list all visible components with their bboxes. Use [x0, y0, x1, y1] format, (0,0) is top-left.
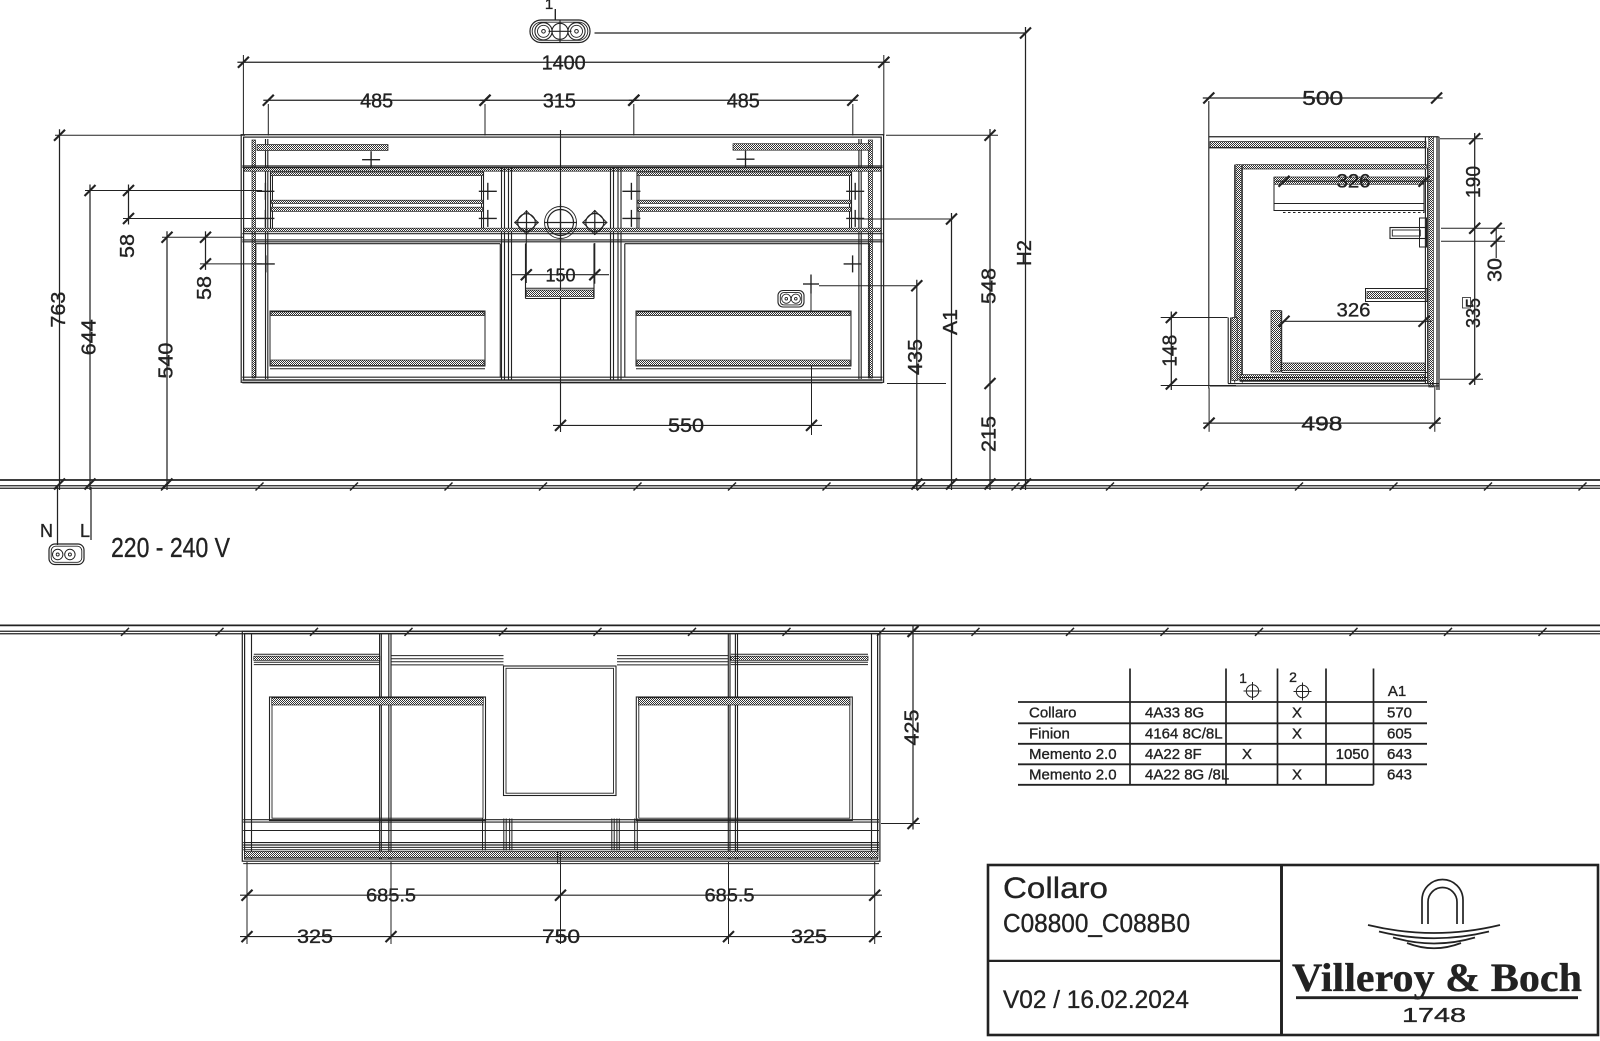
svg-text:Collaro: Collaro: [1029, 705, 1077, 722]
svg-text:335: 335: [1463, 298, 1485, 328]
svg-text:4164 8C/8L: 4164 8C/8L: [1145, 725, 1223, 742]
svg-text:685.5: 685.5: [705, 886, 755, 906]
svg-text:498: 498: [1301, 413, 1342, 435]
svg-text:150: 150: [546, 266, 576, 286]
svg-text:Memento 2.0: Memento 2.0: [1029, 746, 1117, 763]
svg-text:750: 750: [542, 927, 580, 948]
svg-text:V02 / 16.02.2024: V02 / 16.02.2024: [1003, 986, 1189, 1014]
svg-text:Collaro: Collaro: [1003, 872, 1108, 905]
svg-text:763: 763: [48, 292, 70, 328]
svg-text:325: 325: [791, 927, 827, 948]
svg-text:Memento 2.0: Memento 2.0: [1029, 767, 1117, 784]
svg-text:485: 485: [360, 90, 393, 112]
svg-text:X: X: [1292, 725, 1302, 742]
svg-text:1050: 1050: [1336, 746, 1369, 763]
svg-text:215: 215: [978, 416, 1000, 452]
svg-text:2: 2: [1289, 669, 1297, 685]
svg-text:540: 540: [155, 343, 177, 379]
svg-text:4A22 8G /8L: 4A22 8G /8L: [1145, 767, 1229, 784]
svg-text:570: 570: [1387, 705, 1412, 722]
svg-text:326: 326: [1337, 172, 1371, 193]
svg-text:1400: 1400: [542, 53, 586, 75]
svg-text:550: 550: [668, 416, 704, 437]
svg-text:190: 190: [1463, 166, 1485, 198]
svg-text:1: 1: [1239, 670, 1247, 686]
svg-text:605: 605: [1387, 725, 1412, 742]
svg-text:485: 485: [727, 90, 760, 112]
svg-text:548: 548: [978, 268, 1000, 304]
svg-text:315: 315: [543, 90, 576, 112]
svg-text:X: X: [1292, 705, 1302, 722]
svg-text:X: X: [1242, 746, 1252, 763]
svg-text:220 - 240 V: 220 - 240 V: [111, 532, 230, 563]
svg-text:1: 1: [545, 0, 553, 13]
svg-text:A1: A1: [1388, 683, 1406, 700]
svg-text:30: 30: [1484, 258, 1506, 282]
svg-text:Villeroy & Boch: Villeroy & Boch: [1292, 955, 1582, 1000]
svg-text:425: 425: [901, 710, 923, 746]
svg-text:435: 435: [905, 339, 927, 375]
svg-text:325: 325: [297, 927, 333, 948]
svg-text:685.5: 685.5: [366, 886, 416, 906]
svg-text:1748: 1748: [1402, 1005, 1466, 1027]
svg-text:H2: H2: [1014, 240, 1036, 266]
svg-text:4A22 8F: 4A22 8F: [1145, 746, 1202, 763]
svg-text:X: X: [1292, 767, 1302, 784]
svg-text:A1: A1: [940, 309, 962, 335]
svg-text:643: 643: [1387, 767, 1412, 784]
svg-text:644: 644: [78, 319, 100, 355]
svg-text:58: 58: [194, 276, 216, 300]
svg-text:4A33 8G: 4A33 8G: [1145, 705, 1204, 722]
svg-text:58: 58: [117, 234, 139, 258]
svg-text:643: 643: [1387, 746, 1412, 763]
svg-text:148: 148: [1160, 335, 1182, 367]
svg-text:Finion: Finion: [1029, 725, 1070, 742]
svg-text:L: L: [80, 521, 90, 541]
svg-text:N: N: [40, 521, 53, 541]
svg-text:500: 500: [1302, 88, 1343, 110]
svg-text:326: 326: [1337, 301, 1371, 322]
svg-text:C08800_C088B0: C08800_C088B0: [1003, 908, 1190, 938]
